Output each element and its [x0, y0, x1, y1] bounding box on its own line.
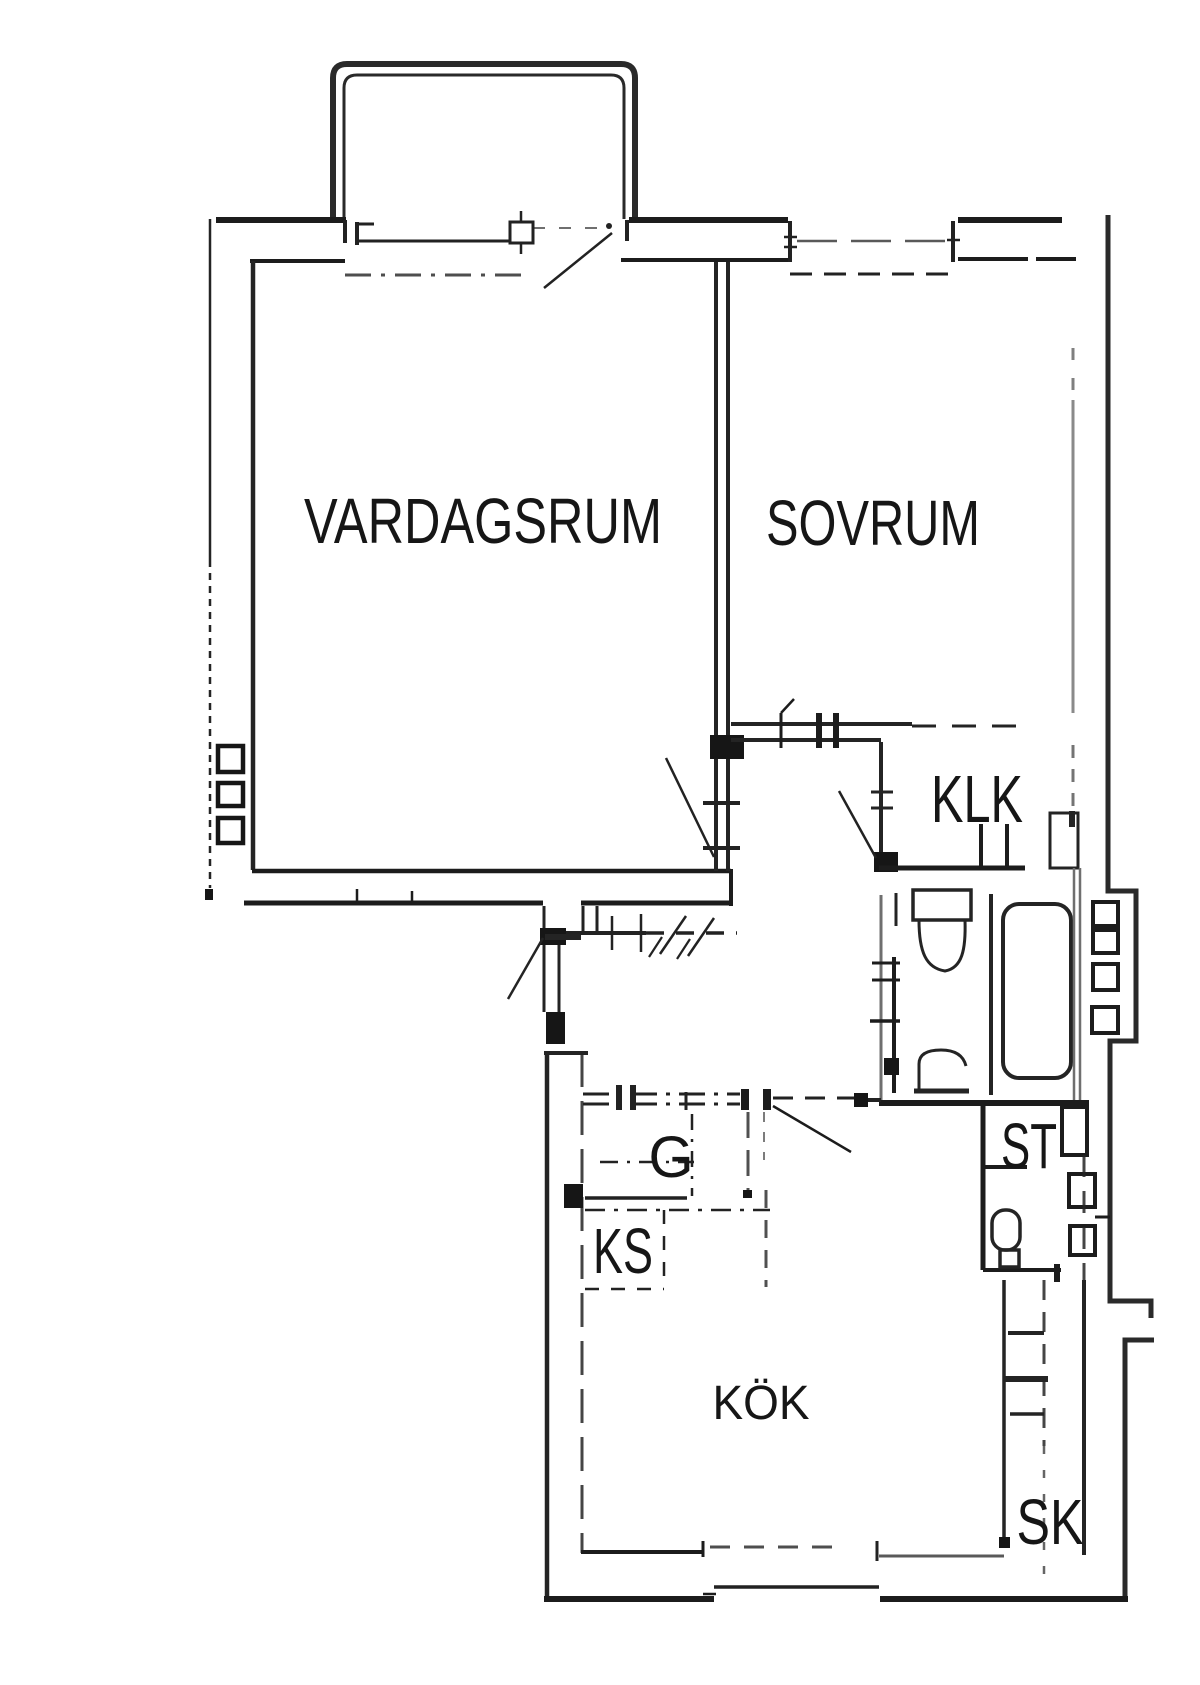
svg-text:ST: ST: [1001, 1110, 1057, 1182]
svg-text:KLK: KLK: [931, 762, 1023, 837]
svg-text:VARDAGSRUM: VARDAGSRUM: [304, 485, 662, 557]
svg-text:KS: KS: [593, 1215, 653, 1287]
svg-text:SK: SK: [1017, 1486, 1084, 1558]
svg-text:SOVRUM: SOVRUM: [766, 487, 980, 559]
svg-text:G: G: [648, 1125, 693, 1190]
svg-text:KÖK: KÖK: [713, 1377, 810, 1430]
